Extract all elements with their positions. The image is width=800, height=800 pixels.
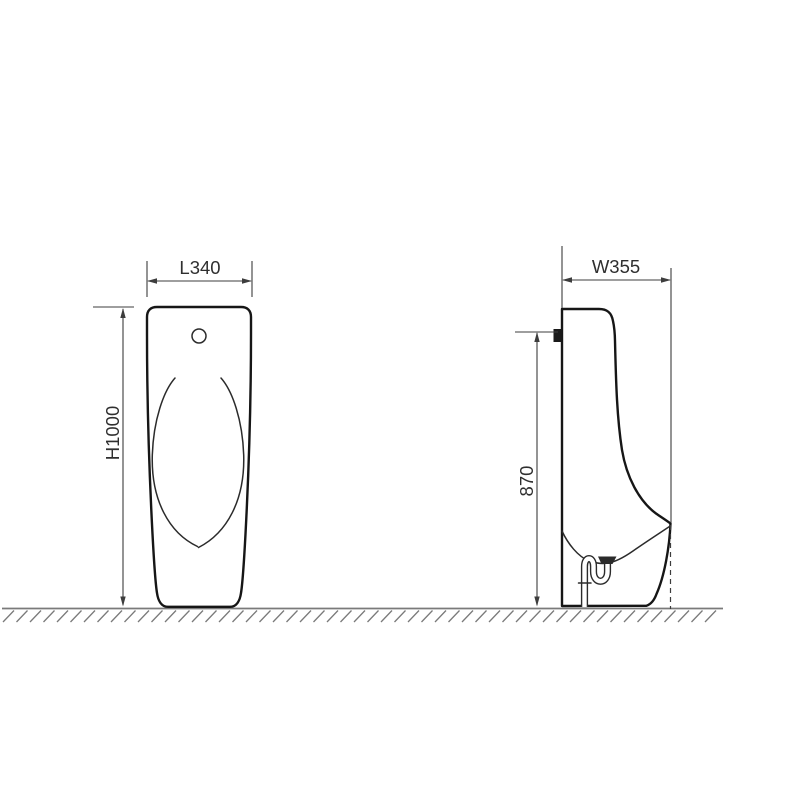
- ground-hatch-mark: [206, 611, 217, 623]
- ground-hatch-mark: [192, 611, 203, 623]
- dimension-label-front-width: L340: [179, 257, 220, 278]
- ground-hatch-mark: [44, 611, 55, 623]
- ground-hatch-mark: [557, 611, 568, 623]
- ground-hatch-mark: [503, 611, 514, 623]
- ground-hatch-mark: [638, 611, 649, 623]
- ground-hatch-mark: [395, 611, 406, 623]
- arrowhead-left: [147, 278, 157, 283]
- front-view: [147, 307, 251, 607]
- ground-hatch-mark: [98, 611, 109, 623]
- urinal-dimension-diagram: L340 H1000 W355 870: [0, 0, 800, 800]
- arrowhead-left: [562, 277, 572, 282]
- ground-hatch-mark: [219, 611, 230, 623]
- dimension-label-side-depth: W355: [592, 256, 640, 277]
- ground-hatch-mark: [354, 611, 365, 623]
- ground-hatch-mark: [165, 611, 176, 623]
- ground-hatch-mark: [30, 611, 41, 623]
- ground-hatch-mark: [692, 611, 703, 623]
- ground-hatch-mark: [57, 611, 68, 623]
- ground-hatch-mark: [233, 611, 244, 623]
- ground-hatch-mark: [341, 611, 352, 623]
- ground-hatch-mark: [246, 611, 257, 623]
- arrowhead-top: [120, 308, 125, 318]
- ground-hatch-mark: [287, 611, 298, 623]
- ground-hatch-mark: [368, 611, 379, 623]
- ground-hatch-mark: [462, 611, 473, 623]
- ground-hatch-mark: [570, 611, 581, 623]
- ground-hatch-mark: [152, 611, 163, 623]
- ground-hatch-mark: [584, 611, 595, 623]
- arrowhead-right: [661, 277, 671, 282]
- dimension-label-side-inlet-height: 870: [516, 466, 537, 497]
- side-view: [554, 309, 671, 609]
- ground-hatch-mark: [678, 611, 689, 623]
- ground-hatch-mark: [381, 611, 392, 623]
- dimension-side-inlet-height: 870: [515, 332, 558, 607]
- ground-hatch-mark: [530, 611, 541, 623]
- ground-hatch-mark: [624, 611, 635, 623]
- ground-hatch-mark: [489, 611, 500, 623]
- ground-hatch-mark: [179, 611, 190, 623]
- ground: [2, 609, 723, 623]
- ground-hatch-mark: [611, 611, 622, 623]
- ground-hatch-mark: [125, 611, 136, 623]
- ground-hatch-mark: [314, 611, 325, 623]
- ground-hatch-mark: [3, 611, 14, 623]
- ground-hatch-mark: [408, 611, 419, 623]
- ground-hatch-mark: [705, 611, 716, 623]
- dimension-front-height: H1000: [93, 307, 134, 607]
- arrowhead-right: [242, 278, 252, 283]
- inlet-spud: [554, 329, 562, 342]
- ground-hatch-mark: [651, 611, 662, 623]
- arrowhead-bottom: [120, 597, 125, 607]
- ground-hatch-mark: [260, 611, 271, 623]
- ground-hatch-mark: [543, 611, 554, 623]
- ground-hatch-mark: [138, 611, 149, 623]
- ground-hatch-mark: [665, 611, 676, 623]
- side-body-outline: [562, 309, 671, 606]
- ground-hatch-mark: [273, 611, 284, 623]
- ground-hatch-mark: [597, 611, 608, 623]
- ground-hatch-mark: [327, 611, 338, 623]
- ground-hatch-mark: [17, 611, 28, 623]
- ground-hatch-mark: [300, 611, 311, 623]
- ground-hatch-mark: [435, 611, 446, 623]
- arrowhead-bottom: [534, 597, 539, 607]
- dimension-label-front-height: H1000: [102, 406, 123, 461]
- ground-hatch-mark: [476, 611, 487, 623]
- dimension-front-width: L340: [147, 257, 252, 297]
- ground-hatching: [3, 611, 716, 623]
- ground-hatch-mark: [84, 611, 95, 623]
- front-body-outline: [147, 307, 251, 607]
- ground-hatch-mark: [422, 611, 433, 623]
- ground-hatch-mark: [516, 611, 527, 623]
- arrowhead-top: [534, 332, 539, 342]
- ground-hatch-mark: [111, 611, 122, 623]
- ground-hatch-mark: [449, 611, 460, 623]
- ground-hatch-mark: [71, 611, 82, 623]
